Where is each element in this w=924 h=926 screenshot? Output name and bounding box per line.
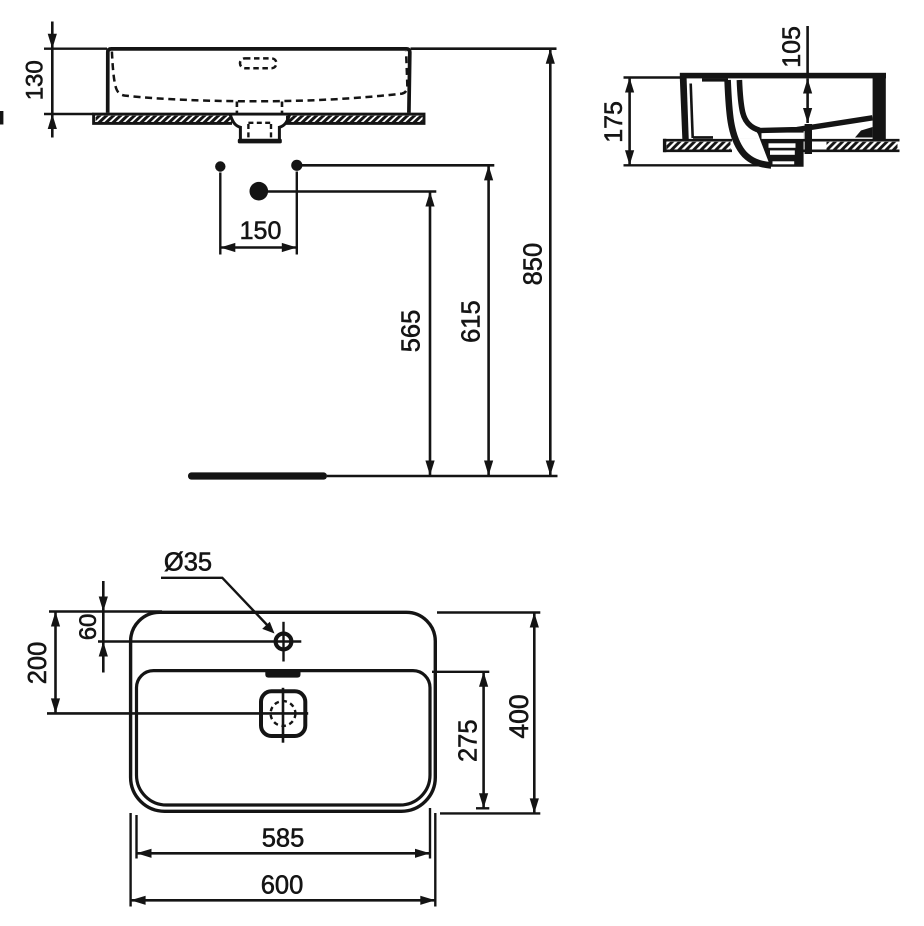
svg-text:600: 600 (261, 872, 304, 900)
svg-text:615: 615 (458, 300, 486, 343)
svg-text:400: 400 (504, 694, 534, 738)
svg-text:Ø35: Ø35 (164, 548, 212, 576)
svg-text:105: 105 (778, 26, 806, 68)
svg-text:130: 130 (22, 60, 49, 100)
svg-text:850: 850 (520, 243, 548, 286)
svg-text:565: 565 (398, 310, 426, 353)
svg-text:585: 585 (262, 825, 305, 853)
svg-text:60: 60 (75, 614, 102, 641)
svg-text:150: 150 (240, 217, 282, 245)
svg-text:275: 275 (454, 719, 482, 762)
svg-text:175: 175 (600, 101, 628, 143)
svg-text:200: 200 (24, 642, 52, 685)
